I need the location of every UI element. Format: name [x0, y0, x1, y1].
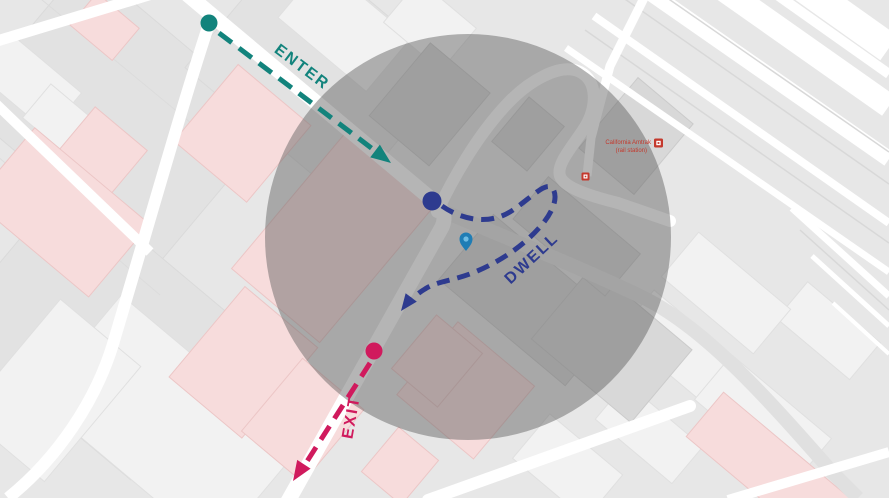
exit-start-dot: [366, 343, 383, 360]
map-svg[interactable]: California Amtrak (rail station) ENTER D…: [0, 0, 889, 498]
enter-start-dot: [201, 15, 218, 32]
station-poi-label-line2: (rail station): [616, 148, 647, 154]
rail-station-icon-2[interactable]: [582, 173, 590, 181]
dwell-dot: [423, 192, 442, 211]
map-canvas[interactable]: California Amtrak (rail station) ENTER D…: [0, 0, 889, 498]
station-poi-label-line1: California Amtrak: [605, 140, 652, 146]
rail-station-icon[interactable]: [654, 139, 663, 148]
